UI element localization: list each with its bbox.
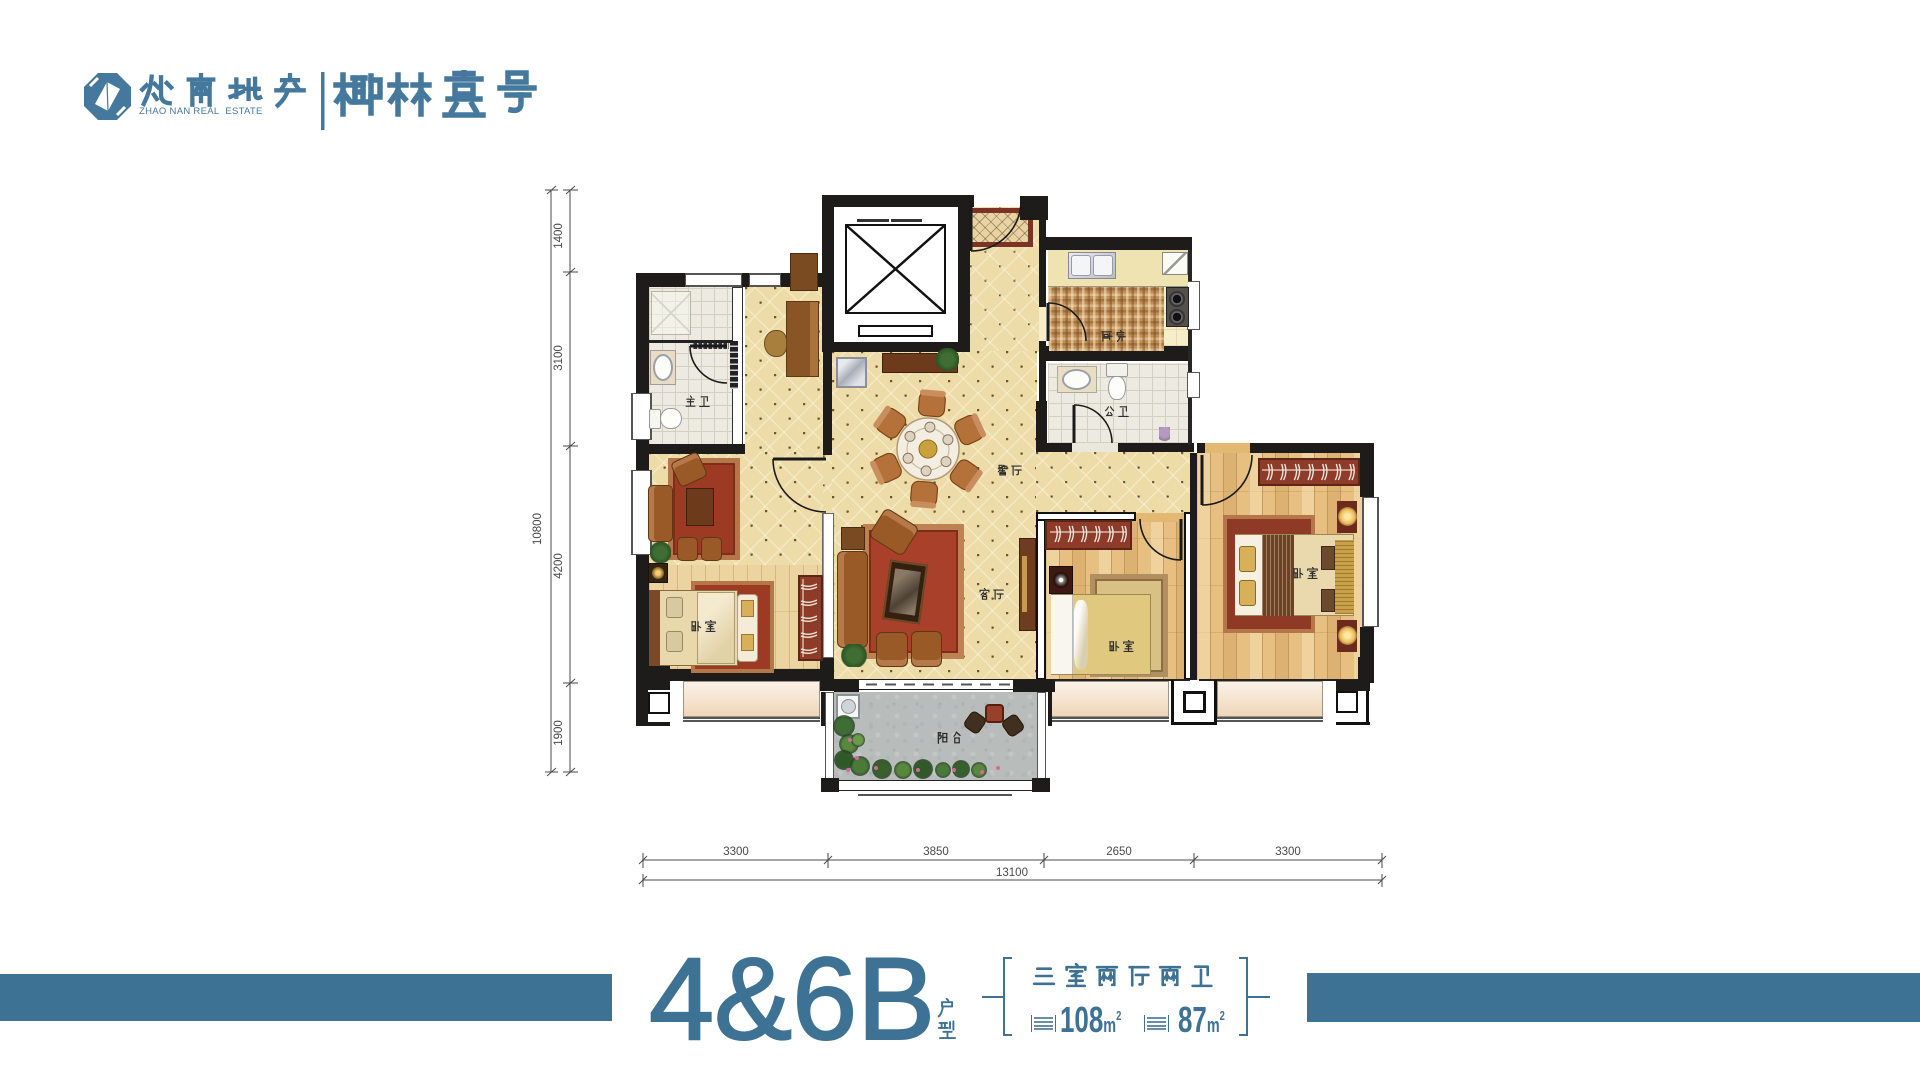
svg-text:3300: 3300 [1275, 846, 1301, 858]
svg-text:4200: 4200 [553, 553, 565, 579]
svg-text:3100: 3100 [553, 345, 565, 371]
svg-text:13100: 13100 [996, 867, 1028, 879]
svg-text:10800: 10800 [532, 513, 544, 545]
svg-text:2650: 2650 [1106, 846, 1132, 858]
svg-text:3850: 3850 [923, 846, 949, 858]
svg-text:1400: 1400 [553, 223, 565, 249]
svg-text:3300: 3300 [723, 846, 749, 858]
svg-text:1900: 1900 [553, 720, 565, 746]
